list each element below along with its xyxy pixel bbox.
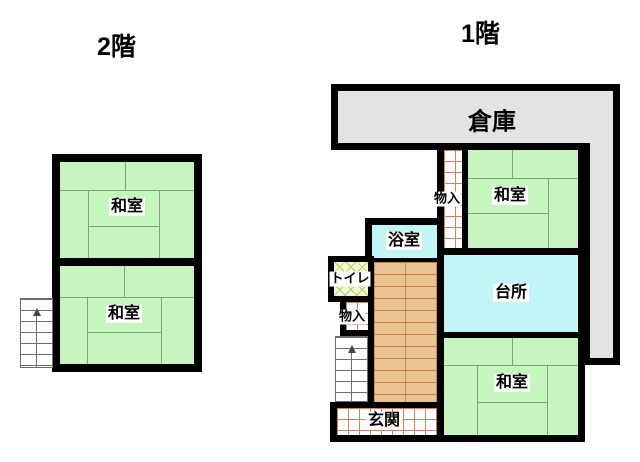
stair-up-arrow-icon: [348, 345, 356, 353]
staircase-center-line: [36, 310, 37, 368]
room-label-washitsu: 和室: [106, 305, 142, 323]
room-label-yokushitsu: 浴室: [386, 232, 422, 250]
wall-bath-north: [365, 218, 444, 225]
room-label-toire: トイレ: [329, 272, 370, 287]
wall-south: [330, 435, 585, 442]
room-label-souko: 倉庫: [468, 102, 516, 137]
floorplan-canvas: 2階 和室 和室 1階: [0, 0, 640, 462]
tatami-line: [125, 162, 126, 190]
room-label-washitsu: 和室: [492, 187, 528, 205]
tatami-line: [60, 190, 194, 191]
tatami-line: [512, 150, 513, 178]
floor-title-1f: 1階: [461, 14, 500, 50]
tatami-line: [468, 213, 548, 214]
room-label-monoiri: 物入: [338, 310, 366, 325]
floor-title-2f: 2階: [97, 27, 136, 63]
hallway: [374, 262, 437, 402]
tatami-line: [548, 178, 549, 248]
tatami-line: [124, 266, 125, 297]
stair-up-arrow-icon: [33, 308, 41, 316]
tatami-line: [477, 365, 478, 435]
tatami-line: [477, 402, 547, 403]
tatami-line: [88, 190, 89, 258]
tatami-line: [512, 338, 513, 365]
wall-hall-east: [437, 143, 444, 442]
room-label-daidokoro: 台所: [493, 284, 529, 302]
tatami-line: [60, 297, 194, 298]
tatami-line: [159, 190, 160, 258]
room-label-monoiri: 物入: [433, 192, 461, 207]
tatami-line: [468, 178, 578, 179]
tatami-line: [88, 226, 160, 227]
tatami-line: [87, 297, 88, 364]
wall-kitchen-north: [437, 248, 585, 255]
tatami-line: [87, 332, 162, 333]
wall-rooms-east: [578, 150, 585, 442]
staircase-center-line: [351, 347, 352, 402]
wall-genkan-west: [330, 402, 337, 442]
room-label-washitsu: 和室: [109, 198, 145, 216]
tatami-line: [547, 365, 548, 435]
tatami-line: [161, 297, 162, 364]
tatami-line: [444, 365, 578, 366]
room-souko-wing: [590, 91, 613, 358]
room-label-washitsu: 和室: [494, 374, 530, 392]
room-label-genkan: 玄関: [366, 412, 402, 430]
